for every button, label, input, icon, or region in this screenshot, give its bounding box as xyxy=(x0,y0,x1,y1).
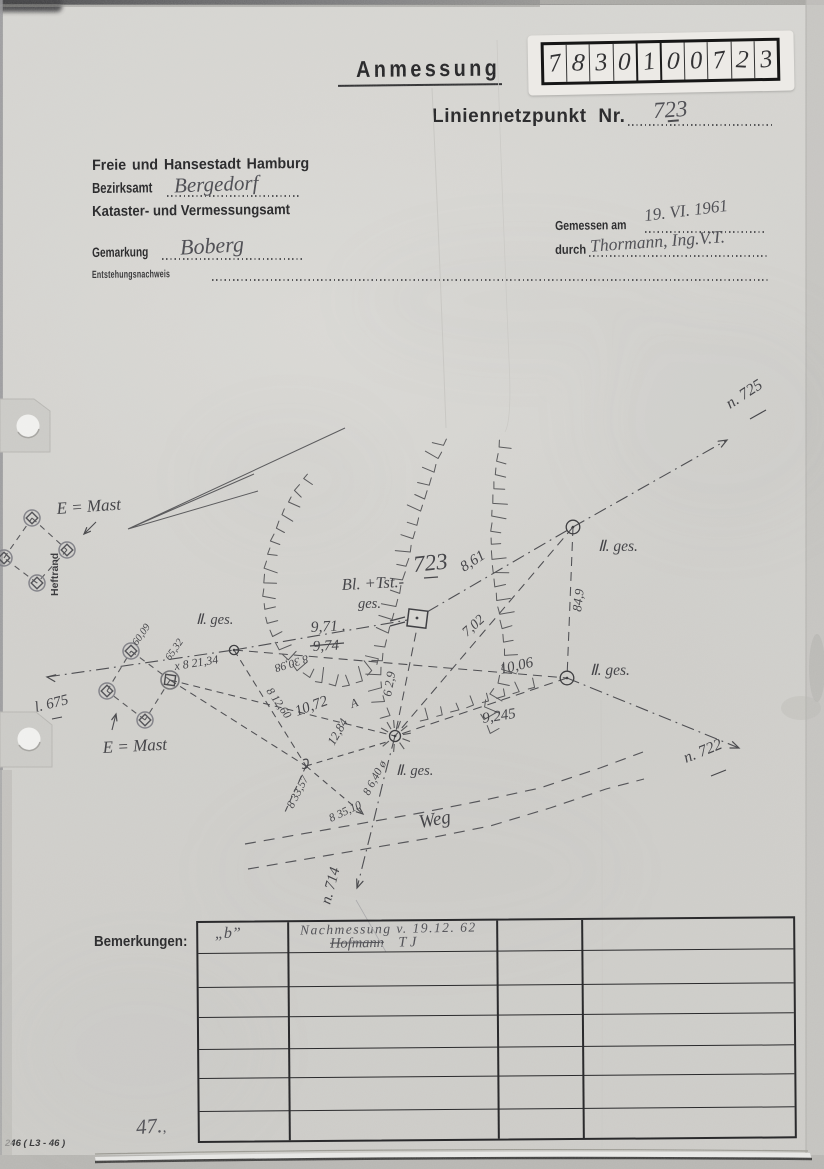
svg-text:84,9: 84,9 xyxy=(569,587,587,612)
svg-text:Ⅱ. ges.: Ⅱ. ges. xyxy=(396,763,433,779)
svg-text:E = Mast: E = Mast xyxy=(101,735,169,757)
svg-text:Ⅱ. ges.: Ⅱ. ges. xyxy=(196,612,233,628)
svg-text:Ⅱ. ges.: Ⅱ. ges. xyxy=(590,662,630,679)
svg-text:723: 723 xyxy=(412,549,449,577)
svg-text:Ⅱ. ges.: Ⅱ. ges. xyxy=(598,538,638,555)
svg-text:ges.: ges. xyxy=(358,596,381,612)
svg-text:Heftrand: Heftrand xyxy=(49,553,61,596)
svg-text:Bl. +Tst.-: Bl. +Tst.- xyxy=(341,572,404,594)
svg-text:9,71 .: 9,71 . xyxy=(310,617,346,636)
svg-text:9,74: 9,74 xyxy=(312,638,340,655)
